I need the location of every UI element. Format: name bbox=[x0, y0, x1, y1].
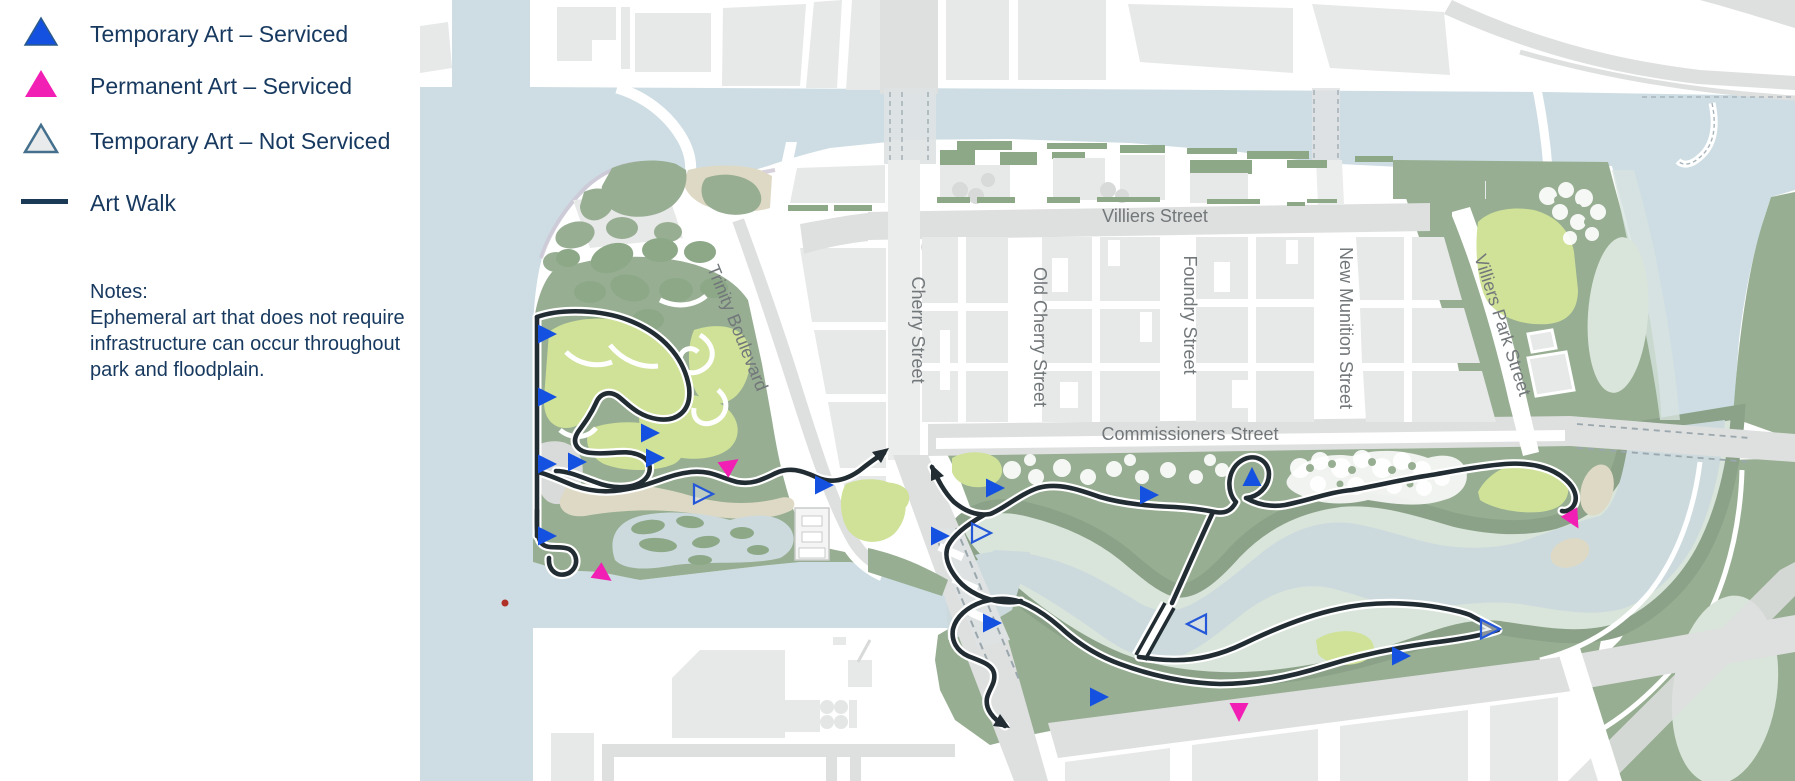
svg-text:Villiers Street: Villiers Street bbox=[1102, 206, 1208, 226]
svg-text:Foundry Street: Foundry Street bbox=[1180, 255, 1200, 374]
svg-text:Cherry Street: Cherry Street bbox=[908, 276, 928, 383]
svg-text:New Munition Street: New Munition Street bbox=[1336, 247, 1356, 409]
svg-text:Old Cherry Street: Old Cherry Street bbox=[1030, 267, 1050, 407]
svg-text:Commissioners Street: Commissioners Street bbox=[1101, 424, 1278, 444]
